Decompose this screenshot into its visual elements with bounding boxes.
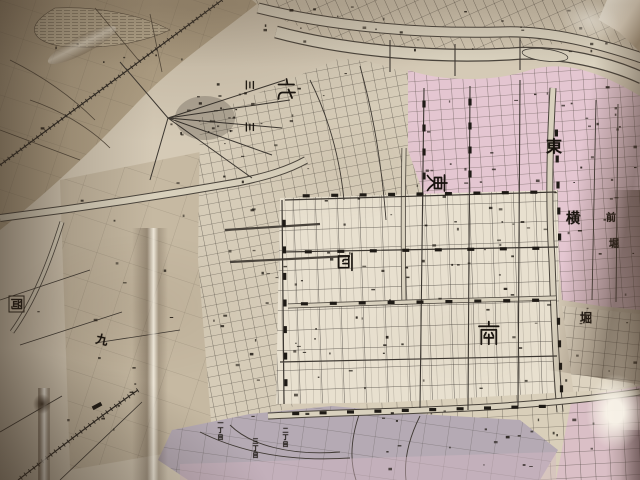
kanji-ward-east [428,175,448,191]
fold-crease-left [132,228,168,480]
paper-mottling [0,0,640,480]
railway-lines [0,0,222,480]
crumple-shadow-bottomright [620,430,640,480]
map-photo: 東 横 堀 岡 九 三 三 前 堀 一丁目 二丁目 三丁目 [0,0,640,480]
fold-shadow-right [506,0,640,391]
canal-label-higashi: 東 [546,139,562,155]
edge-label-hori: 堀 [609,240,619,250]
three-label-b: 三 [243,122,253,132]
crumple-glow-topright [556,0,624,47]
kanji-ward-north [279,79,296,99]
tiny-label-noise [37,6,637,470]
north-city [252,0,640,59]
edge-label-mae: 前 [606,214,616,224]
southeast-area [562,306,640,396]
marsh-water [34,8,170,48]
canal-higashiyokobori [550,88,560,412]
south-district-area [276,190,560,404]
canal-label-yoko: 横 [566,212,580,226]
river-south-channel [276,32,640,78]
chome-label-2: 二丁目 [281,427,287,448]
canal-dotonbori [268,392,640,416]
left-river [0,160,306,218]
fold-hole-bottomleft [33,394,51,414]
west-district-area [198,58,434,434]
east-district-area [408,66,640,310]
edge-shadow-right [606,190,640,480]
rural-area [0,0,262,230]
map-linework [0,0,640,480]
three-label-a: 三 [243,80,253,90]
crumple-highlight-bottomright [586,374,640,450]
boxed-oka-label: 岡 [9,295,25,312]
bridge-name-cartouches [283,99,564,416]
canal-nishiyokobori [403,148,404,305]
bottom-pink-strip [180,452,556,480]
west-outskirts [60,150,215,470]
river-island [521,46,568,64]
major-roads [0,62,618,480]
photo-vignette [0,0,640,480]
canal-label-hori: 堀 [580,312,592,324]
paper-base [0,0,640,480]
bottomright-area [356,388,640,480]
fold-crease-bottomleft [38,388,50,480]
purple-district-area [158,406,558,480]
kanji-ward-west [338,253,352,270]
dense-core [175,96,235,140]
canal-nagahori [288,298,556,306]
crumple-corner-topright [594,0,640,52]
chome-label-1: 一丁目 [216,420,222,441]
west-canals [225,224,350,262]
fold-crease-topleft [44,20,120,71]
nine-label: 九 [95,333,109,347]
kanji-ward-south [479,322,499,344]
bridges [390,38,520,76]
label-layer: 東 横 堀 岡 九 三 三 前 堀 一丁目 二丁目 三丁目 [0,0,640,480]
chome-label-3: 三丁目 [251,438,257,459]
rivers [0,8,640,416]
corner-pink [556,386,640,480]
